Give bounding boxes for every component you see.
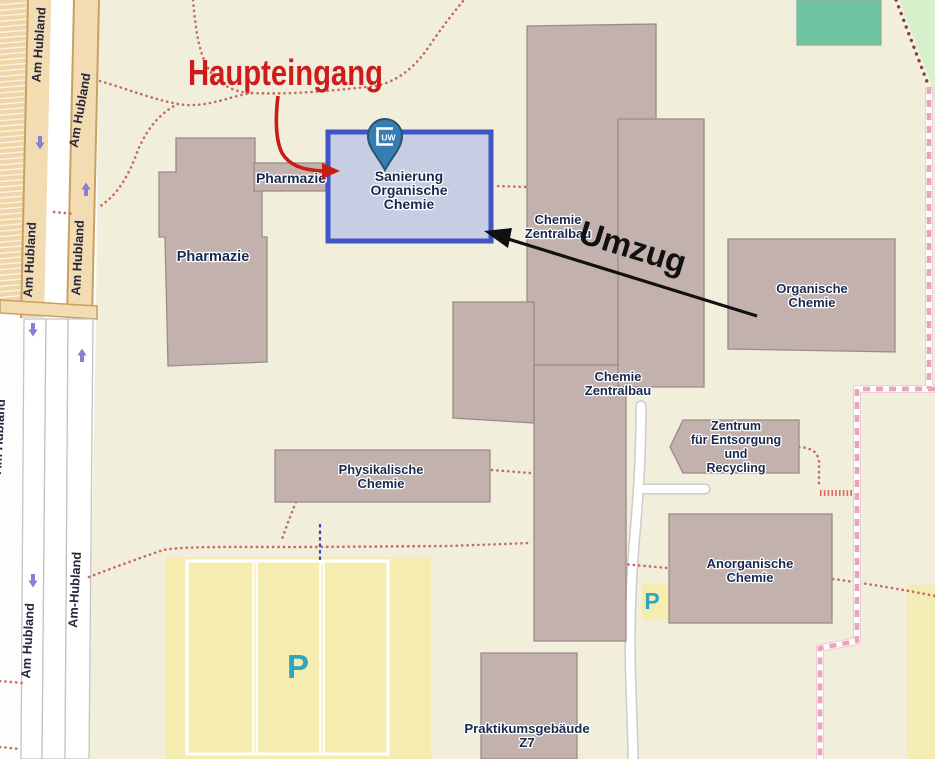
- svg-text:Recycling: Recycling: [706, 461, 765, 475]
- svg-text:Anorganische: Anorganische: [707, 556, 794, 571]
- svg-text:Z7: Z7: [519, 735, 534, 750]
- svg-text:Pharmazie: Pharmazie: [177, 249, 250, 265]
- svg-text:Chemie: Chemie: [358, 476, 405, 491]
- svg-text:Organische: Organische: [776, 281, 848, 296]
- svg-text:Chemie: Chemie: [789, 295, 836, 310]
- svg-text:P: P: [644, 588, 659, 614]
- svg-text:UW: UW: [381, 133, 396, 143]
- svg-text:Chemie: Chemie: [595, 369, 642, 384]
- svg-text:P: P: [287, 648, 309, 685]
- svg-text:Praktikumsgebäude: Praktikumsgebäude: [464, 721, 589, 736]
- svg-text:für Entsorgung: für Entsorgung: [691, 433, 781, 447]
- svg-text:Haupteingang: Haupteingang: [188, 52, 383, 93]
- svg-text:Chemie: Chemie: [535, 212, 582, 227]
- svg-text:Chemie: Chemie: [727, 570, 774, 585]
- svg-text:Zentrum: Zentrum: [711, 419, 761, 433]
- svg-text:Zentralbau: Zentralbau: [585, 383, 652, 398]
- svg-text:Chemie: Chemie: [384, 196, 435, 212]
- svg-text:Physikalische: Physikalische: [339, 462, 424, 477]
- svg-text:und: und: [725, 447, 748, 461]
- svg-text:Pharmazie: Pharmazie: [256, 170, 326, 186]
